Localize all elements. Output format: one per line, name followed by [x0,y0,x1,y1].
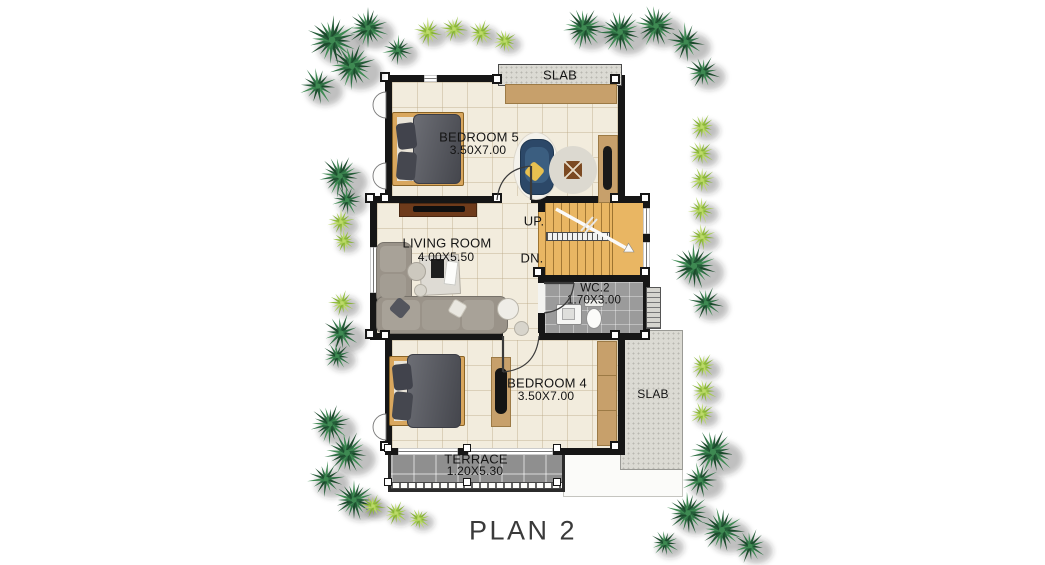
plant-icon [635,6,683,47]
window [643,242,650,268]
plant-icon [324,432,375,475]
plant-icon [328,290,359,317]
room-dims-terrace: 1.20X5.30 [447,465,504,477]
plant-icon [691,115,720,141]
plant-icon [667,492,716,535]
column [610,441,620,451]
plant-icon [597,11,649,54]
plant-icon [308,15,365,65]
plant-icon [563,10,611,50]
window [643,208,650,234]
room-dims-bedroom5: 3.50X7.00 [450,144,507,156]
plant-icon [307,461,350,498]
plant-icon [386,501,412,526]
column [463,478,471,486]
plant-icon [319,157,367,198]
slab-top-label: SLAB [543,69,577,82]
plant-icon [692,354,721,380]
sofa-cushion [462,300,494,330]
column [610,74,620,84]
column [380,72,390,82]
plant-icon [652,531,684,558]
column [380,330,390,340]
pillow [395,122,417,150]
column [533,267,543,277]
plant-icon [311,405,356,445]
column [610,193,620,203]
sink-basin [562,308,575,320]
side-table [564,161,582,179]
plant-icon [689,430,743,475]
plant-icon [686,57,726,90]
plant-icon [690,168,720,194]
column [365,193,375,203]
column [640,330,650,340]
column [553,478,561,486]
column [640,267,650,277]
column [553,444,561,452]
plant-icon [334,480,380,521]
plant-icon [494,30,521,54]
column [384,478,392,486]
pillow [392,391,414,421]
tv-screen [413,206,465,212]
plant-icon [440,16,471,42]
plant-icon [689,224,720,251]
window [424,75,437,82]
room-dims-bedroom4: 3.50X7.00 [518,390,575,402]
stool [514,321,529,336]
column [640,193,650,203]
room-label-wc2: WC.2 [580,283,610,295]
terrace-railing [391,482,562,489]
plant-icon [414,17,447,47]
plant-icon [324,344,355,371]
desk-chair [407,262,426,281]
column [492,74,502,84]
stool [414,284,427,297]
plant-icon [667,22,711,62]
wardrobe [597,341,617,446]
stair-landing [612,203,643,275]
plant-icon [691,380,721,405]
column [384,444,392,452]
door-opening-wc2 [538,283,545,313]
plant-icon [332,186,367,216]
tv-screen [495,368,507,414]
stairs-down-label: DN. [521,252,544,265]
plant-icon [736,529,773,563]
page-title: PLAN 2 [469,518,577,545]
plant-icon [671,243,724,289]
column [610,330,620,340]
pillow [392,363,414,391]
tv-screen [603,146,612,190]
slab-right-label: SLAB [637,388,669,400]
stairs-up-label: UP. [524,215,545,228]
bed-blanket [407,354,461,428]
sofa-cushion [380,274,406,298]
room-label-living: LIVING ROOM [403,237,492,250]
side-table-round [497,298,519,320]
plant-icon [360,494,389,518]
plant-icon [688,287,728,320]
room-label-bedroom4: BEDROOM 4 [507,377,587,390]
column [365,329,375,339]
plant-icon [382,35,418,66]
plant-icon [300,68,343,106]
floor-plan-page: BEDROOM 5 3.50X7.00 LIVING ROOM 4.00X5.5… [0,0,1045,565]
plant-icon [333,229,359,253]
room-dims-living: 4.00X5.50 [418,251,475,263]
plant-icon [690,403,718,427]
column [380,193,390,203]
plant-icon [350,7,394,49]
toilet-bowl [586,308,602,329]
closet [505,84,617,104]
pillow [396,151,417,181]
plant-icon [325,314,366,353]
plant-icon [702,508,751,553]
plant-icon [409,509,434,531]
column [492,193,502,203]
plant-icon [470,20,499,47]
room-dims-wc2: 1.70X3.00 [567,295,621,307]
plant-icon [683,462,724,498]
vent-unit [646,287,661,329]
plant-icon [330,44,382,89]
stair-railing [546,232,610,241]
plant-icon [689,142,718,167]
plant-icon [327,209,358,236]
room-label-bedroom5: BEDROOM 5 [439,131,519,144]
plant-icon [688,197,719,224]
